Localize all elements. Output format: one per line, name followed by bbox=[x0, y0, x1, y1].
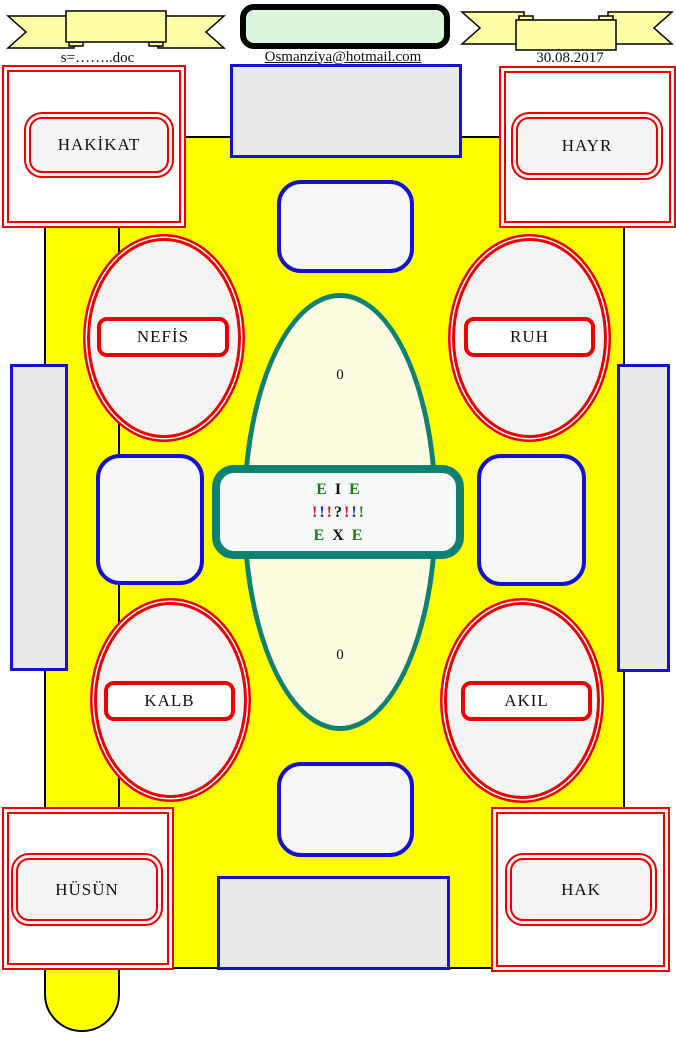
corner-label-hakikat: HAKİKAT bbox=[24, 112, 174, 178]
zero-top-text: 0 bbox=[325, 365, 355, 385]
ellipse-label-akil: AKIL bbox=[461, 681, 592, 721]
gray-rect-right bbox=[617, 364, 670, 672]
ellipse-label-nefis: NEFİS bbox=[97, 317, 229, 357]
blue-box-bottom bbox=[277, 762, 414, 857]
gray-rect-left bbox=[10, 364, 68, 671]
gray-rect-top bbox=[230, 64, 462, 158]
center-line-exe: EXE bbox=[310, 524, 367, 547]
blue-box-right bbox=[477, 454, 586, 586]
gray-rect-bottom bbox=[217, 876, 450, 970]
center-line-eie: EIE bbox=[312, 478, 364, 501]
blue-box-left bbox=[96, 454, 204, 585]
ellipse-label-kalb: KALB bbox=[104, 681, 235, 721]
ribbon-banner-right-icon bbox=[460, 8, 674, 52]
document-page: s=……..doc Osmanziya@hotmail.com 30.08.20… bbox=[0, 0, 676, 1038]
corner-label-hak: HAK bbox=[505, 853, 657, 926]
corner-label-husun: HÜSÜN bbox=[11, 853, 163, 926]
blue-box-top bbox=[277, 180, 414, 273]
center-line-exclamations: !!!?!!! bbox=[311, 501, 365, 524]
center-teal-box: EIE !!!?!!! EXE bbox=[212, 465, 464, 559]
date-text: 30.08.2017 bbox=[505, 49, 635, 67]
ribbon-banner-left-icon bbox=[6, 8, 226, 52]
corner-label-hayr: HAYR bbox=[511, 112, 663, 180]
header-green-box bbox=[240, 4, 450, 49]
ellipse-label-ruh: RUH bbox=[464, 317, 595, 357]
zero-bottom-text: 0 bbox=[325, 645, 355, 665]
